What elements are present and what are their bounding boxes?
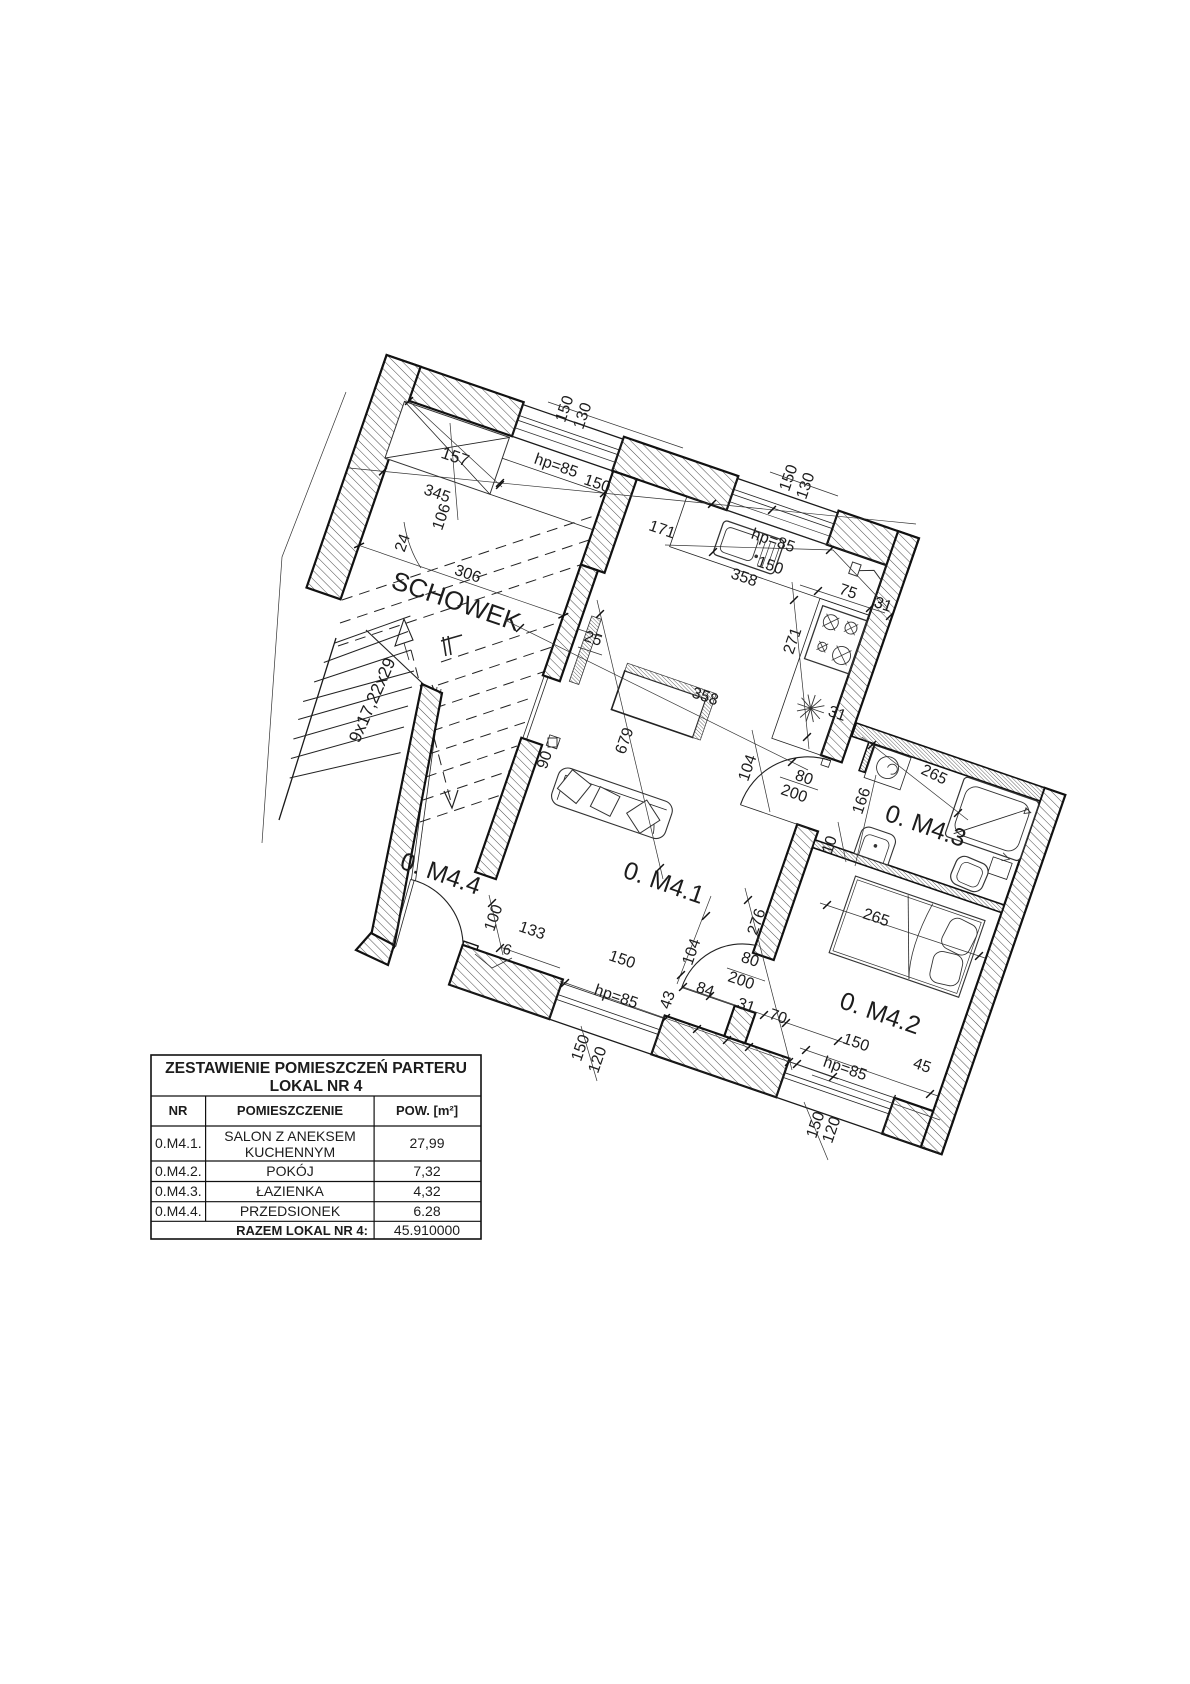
svg-text:200: 200 <box>726 969 757 994</box>
svg-text:0.M4.3.: 0.M4.3. <box>155 1183 202 1199</box>
svg-text:POMIESZCZENIE: POMIESZCZENIE <box>237 1103 344 1118</box>
svg-text:45.910000: 45.910000 <box>394 1222 460 1238</box>
svg-text:4,32: 4,32 <box>413 1183 440 1199</box>
svg-text:SALON Z ANEKSEM: SALON Z ANEKSEM <box>224 1128 355 1144</box>
svg-text:24: 24 <box>392 532 414 554</box>
svg-text:6.28: 6.28 <box>413 1203 440 1219</box>
svg-text:150: 150 <box>841 1031 872 1056</box>
svg-text:RAZEM LOKAL NR 4:: RAZEM LOKAL NR 4: <box>236 1223 368 1238</box>
svg-text:PRZEDSIONEK: PRZEDSIONEK <box>240 1203 341 1219</box>
svg-text:0.M4.1.: 0.M4.1. <box>155 1135 202 1151</box>
svg-text:POKÓJ: POKÓJ <box>266 1163 313 1179</box>
svg-text:0.M4.4.: 0.M4.4. <box>155 1203 202 1219</box>
svg-text:ZESTAWIENIE POMIESZCZEŃ PARTER: ZESTAWIENIE POMIESZCZEŃ PARTERU <box>165 1058 467 1077</box>
svg-text:POW. [m²]: POW. [m²] <box>396 1103 458 1118</box>
svg-text:679: 679 <box>613 726 638 757</box>
svg-text:306: 306 <box>452 562 483 587</box>
svg-text:106: 106 <box>430 502 455 533</box>
svg-text:75: 75 <box>837 581 859 603</box>
svg-text:150: 150 <box>607 948 638 973</box>
svg-text:45: 45 <box>911 1055 933 1077</box>
svg-text:LOKAL NR 4: LOKAL NR 4 <box>270 1078 363 1095</box>
svg-text:43: 43 <box>657 989 679 1011</box>
svg-text:7,32: 7,32 <box>413 1163 440 1179</box>
svg-text:133: 133 <box>517 919 548 944</box>
svg-text:27,99: 27,99 <box>409 1135 444 1151</box>
svg-text:9x17,22x29: 9x17,22x29 <box>344 655 399 746</box>
svg-text:0.M4.2.: 0.M4.2. <box>155 1163 202 1179</box>
svg-text:171: 171 <box>647 518 678 543</box>
svg-text:NR: NR <box>169 1103 188 1118</box>
svg-text:KUCHENNYM: KUCHENNYM <box>245 1144 335 1160</box>
svg-text:0. M4.4: 0. M4.4 <box>397 847 485 901</box>
svg-text:70: 70 <box>767 1006 789 1028</box>
svg-text:6: 6 <box>500 941 513 960</box>
svg-text:150: 150 <box>582 472 613 497</box>
svg-text:hp=85: hp=85 <box>821 1054 869 1085</box>
svg-text:104: 104 <box>680 937 705 968</box>
svg-text:ŁAZIENKA: ŁAZIENKA <box>256 1183 324 1199</box>
svg-text:hp=85: hp=85 <box>592 982 640 1013</box>
svg-text:166: 166 <box>850 786 875 817</box>
svg-text:345: 345 <box>422 482 453 507</box>
